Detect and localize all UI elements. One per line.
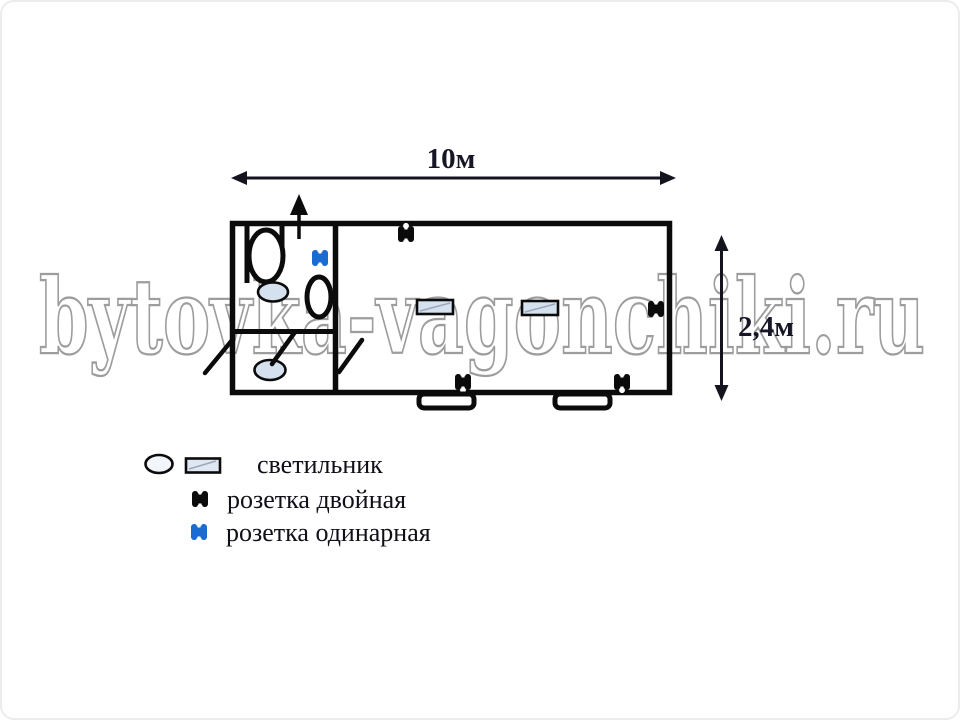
ceiling-light-washroom: [258, 283, 288, 302]
entrance-arrow-head: [290, 194, 308, 215]
legend: светильник розетка двойная розетка одина…: [146, 450, 431, 547]
double-socket-bottom-wall-1-icon: [455, 371, 471, 393]
sink: [307, 277, 331, 317]
double-socket-top-wall-icon: [398, 223, 414, 245]
window-2: [555, 394, 610, 408]
width-dimension-arrowhead-right: [660, 171, 676, 185]
double-socket-right-wall-icon: [648, 298, 664, 320]
legend-label-double-socket: розетка двойная: [227, 485, 406, 514]
window-1: [419, 394, 474, 408]
width-dimension-label: 10м: [427, 143, 476, 175]
legend-row-double-socket: розетка двойная: [192, 485, 406, 514]
height-dimension-label: 2,4м: [738, 311, 794, 343]
double-socket-bottom-wall-2-icon: [614, 371, 630, 393]
legend-label-light: светильник: [257, 450, 383, 479]
toilet: [249, 230, 283, 282]
floor-plan-figure: bytovka-vagonchiki.ru: [2, 2, 960, 720]
single-socket-icon: [191, 521, 207, 543]
width-dimension-arrowhead-left: [231, 171, 247, 185]
light-fixture-oval-icon: [146, 455, 173, 473]
width-dimension: 10м: [231, 143, 676, 185]
floor-plan-page: bytovka-vagonchiki.ru: [0, 0, 960, 720]
entrance-arrow: [290, 194, 308, 239]
height-dimension-arrowhead-bottom: [715, 385, 729, 401]
legend-row-light: светильник: [146, 450, 384, 479]
single-socket-washroom-icon: [312, 247, 328, 269]
legend-label-single-socket: розетка одинарная: [226, 518, 431, 547]
height-dimension-arrowhead-top: [715, 235, 729, 251]
legend-row-single-socket: розетка одинарная: [191, 518, 431, 547]
double-socket-icon: [192, 488, 208, 510]
